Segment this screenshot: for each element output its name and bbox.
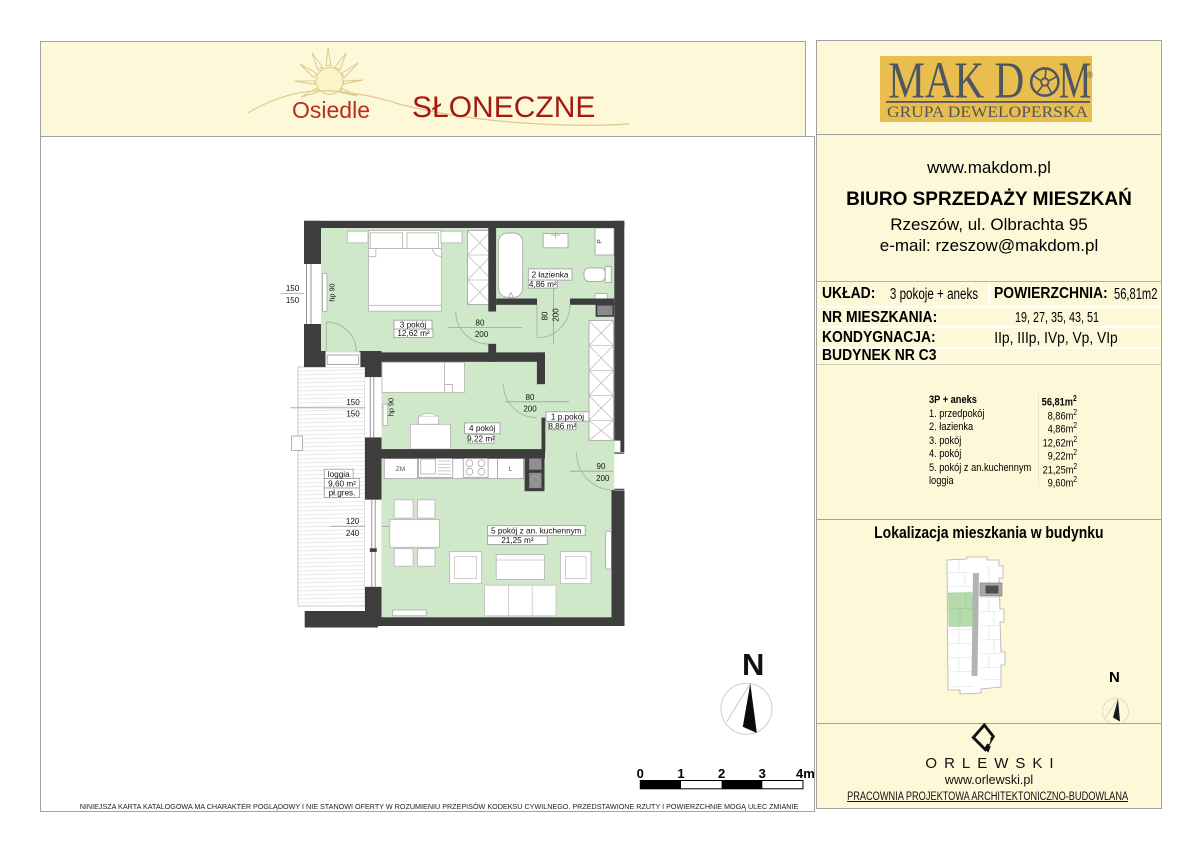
svg-text:5 pokój z an. kuchennym: 5 pokój z an. kuchennym	[491, 526, 582, 535]
svg-text:150: 150	[346, 410, 360, 419]
svg-text:P: P	[597, 239, 604, 243]
svg-text:200: 200	[475, 330, 489, 339]
svg-text:200: 200	[596, 474, 610, 483]
svg-text:8,86 m²: 8,86 m²	[548, 422, 576, 431]
svg-text:hp 90: hp 90	[386, 398, 395, 416]
svg-text:21,25 m²: 21,25 m²	[501, 536, 534, 545]
svg-text:ZM: ZM	[396, 466, 405, 473]
svg-text:80: 80	[541, 311, 550, 320]
svg-text:2 łazienka: 2 łazienka	[532, 271, 569, 280]
svg-text:0: 0	[637, 766, 644, 781]
svg-text:240: 240	[346, 529, 360, 538]
svg-text:3: 3	[759, 766, 766, 781]
svg-text:pł.gres.: pł.gres.	[329, 489, 356, 498]
svg-text:®: ®	[1087, 70, 1094, 80]
svg-text:150: 150	[286, 296, 300, 305]
svg-text:hp 90: hp 90	[328, 283, 337, 301]
svg-text:150: 150	[346, 398, 360, 407]
svg-text:3 pokój: 3 pokój	[400, 320, 427, 329]
svg-text:12,62 m²: 12,62 m²	[397, 329, 430, 338]
svg-text:4 pokój: 4 pokój	[469, 424, 496, 433]
svg-text:2: 2	[718, 766, 725, 781]
svg-text:MAK D: MAK D	[888, 53, 1024, 109]
svg-text:4,86 m²: 4,86 m²	[529, 280, 557, 289]
svg-text:L: L	[509, 466, 513, 473]
svg-text:200: 200	[523, 405, 537, 414]
svg-text:9,60 m²: 9,60 m²	[328, 479, 356, 488]
svg-text:80: 80	[526, 393, 535, 402]
svg-text:9,22 m²: 9,22 m²	[467, 435, 495, 444]
svg-text:120: 120	[346, 517, 360, 526]
svg-text:150: 150	[286, 284, 300, 293]
svg-text:4m: 4m	[796, 766, 815, 781]
svg-text:N: N	[742, 647, 764, 682]
svg-text:200: 200	[552, 308, 561, 322]
svg-text:1 p.pokój: 1 p.pokój	[551, 412, 584, 421]
svg-text:M: M	[1059, 51, 1091, 109]
svg-text:80: 80	[476, 319, 485, 328]
svg-text:1: 1	[677, 766, 684, 781]
svg-text:90: 90	[597, 462, 606, 471]
svg-text:GRUPA DEWELOPERSKA: GRUPA DEWELOPERSKA	[887, 104, 1089, 121]
svg-text:N: N	[1109, 669, 1120, 686]
svg-text:loggia: loggia	[328, 470, 350, 479]
